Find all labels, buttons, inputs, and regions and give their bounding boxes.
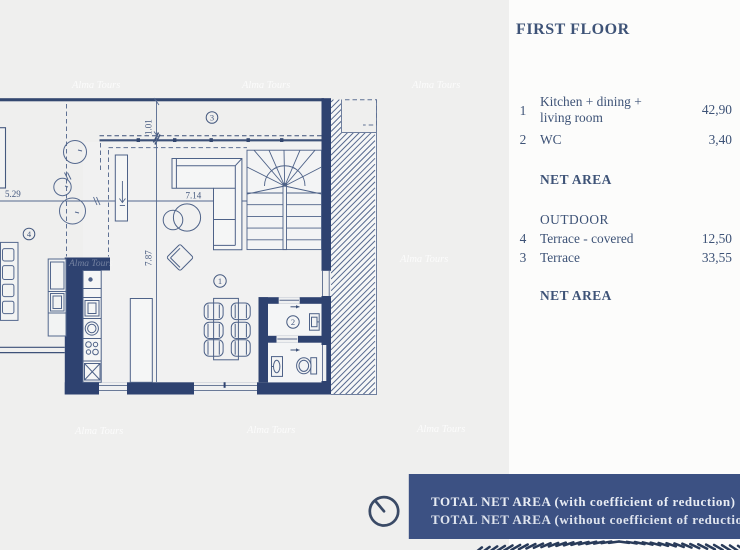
svg-text:42,90: 42,90 [702,102,732,117]
svg-text:WC: WC [540,132,562,147]
svg-text:Alma Tours: Alma Tours [416,424,465,435]
svg-text:Alma Tours: Alma Tours [241,80,290,91]
svg-text:5.29: 5.29 [5,189,21,199]
svg-text:Alma Tours: Alma Tours [399,254,448,265]
svg-text:NET AREA: NET AREA [540,288,612,303]
svg-text:TOTAL NET AREA (with coefficie: TOTAL NET AREA (with coefficient of redu… [431,494,736,509]
svg-text:Alma Tours: Alma Tours [68,259,113,269]
svg-text:3: 3 [210,113,214,123]
svg-text:Terrace - covered: Terrace - covered [540,231,634,246]
svg-text:7.14: 7.14 [186,191,202,201]
svg-text:FIRST FLOOR: FIRST FLOOR [516,21,630,38]
svg-text:Kitchen + dining +: Kitchen + dining + [540,94,642,109]
svg-text:7.87: 7.87 [144,250,154,266]
svg-text:1: 1 [218,276,222,286]
svg-text:3: 3 [520,250,527,265]
svg-text:2: 2 [291,317,295,327]
svg-text:4: 4 [520,231,527,246]
svg-text:Terrace: Terrace [540,250,580,265]
svg-text:2: 2 [520,132,527,147]
svg-text:Alma Tours: Alma Tours [74,426,123,437]
svg-text:Alma Tours: Alma Tours [71,80,120,91]
svg-text:1: 1 [520,103,527,118]
svg-text:12,50: 12,50 [702,231,732,246]
svg-text:Alma Tours: Alma Tours [246,425,295,436]
svg-text:Alma Tours: Alma Tours [411,80,460,91]
svg-text:3,40: 3,40 [709,132,733,147]
svg-text:NET AREA: NET AREA [540,172,612,187]
svg-text:OUTDOOR: OUTDOOR [540,212,609,227]
svg-text:TOTAL NET AREA (without coeffi: TOTAL NET AREA (without coefficient of r… [431,512,740,527]
svg-text:living room: living room [540,110,603,125]
svg-text:33,55: 33,55 [702,250,732,265]
svg-text:1.01: 1.01 [144,119,154,135]
